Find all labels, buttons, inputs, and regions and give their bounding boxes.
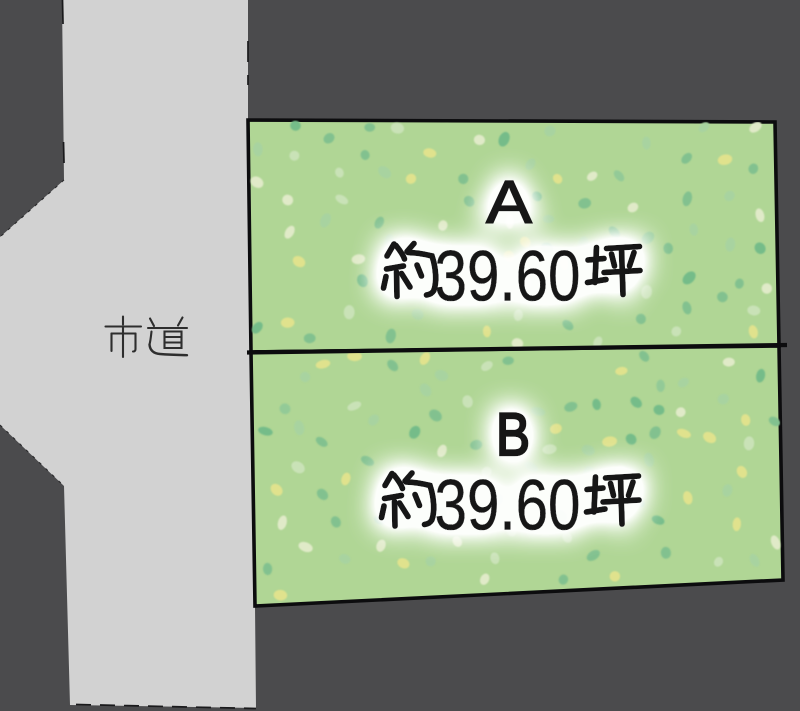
svg-text:A: A xyxy=(486,169,532,236)
svg-text:B: B xyxy=(496,401,530,468)
svg-text:39.60: 39.60 xyxy=(435,238,581,317)
svg-text:39.60: 39.60 xyxy=(435,467,581,546)
